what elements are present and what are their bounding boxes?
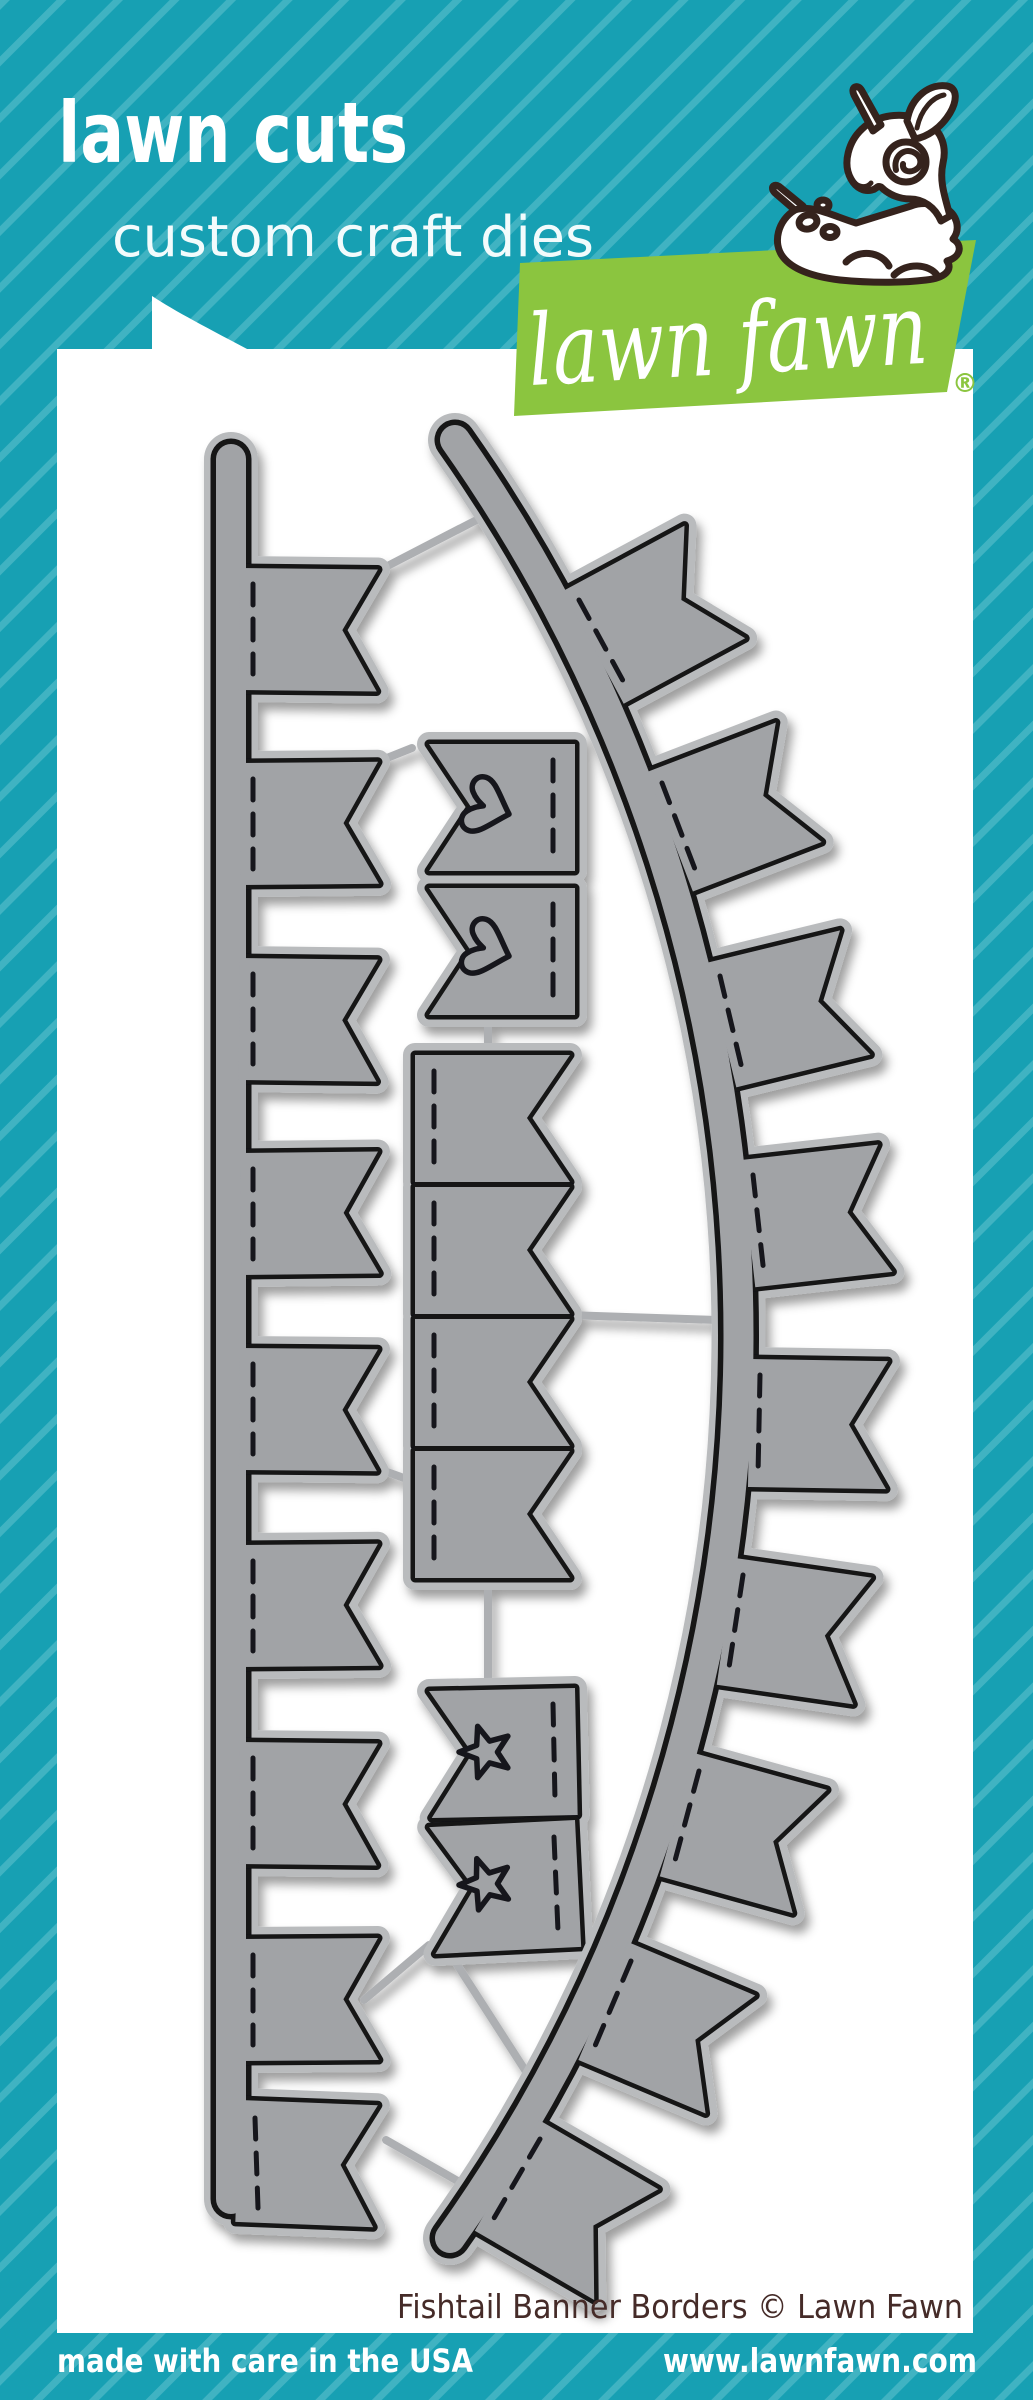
- product-caption: Fishtail Banner Borders © Lawn Fawn: [397, 2287, 963, 2326]
- page-title: lawn cuts: [58, 84, 408, 182]
- package-front: lawn cuts custom craft dies lawn fawn ®: [0, 0, 1033, 2400]
- made-in-text: made with care in the USA: [57, 2342, 473, 2380]
- logo-script-text: lawn fawn: [525, 273, 931, 409]
- deer-spot: [823, 227, 837, 238]
- registered-icon: ®: [952, 369, 978, 399]
- deer-spot: [797, 213, 818, 231]
- page-subtitle: custom craft dies: [112, 205, 594, 270]
- website-text: www.lawnfawn.com: [663, 2341, 977, 2380]
- deer-spot: [817, 200, 829, 210]
- package-front-art: lawn cuts custom craft dies lawn fawn ®: [0, 0, 1033, 2400]
